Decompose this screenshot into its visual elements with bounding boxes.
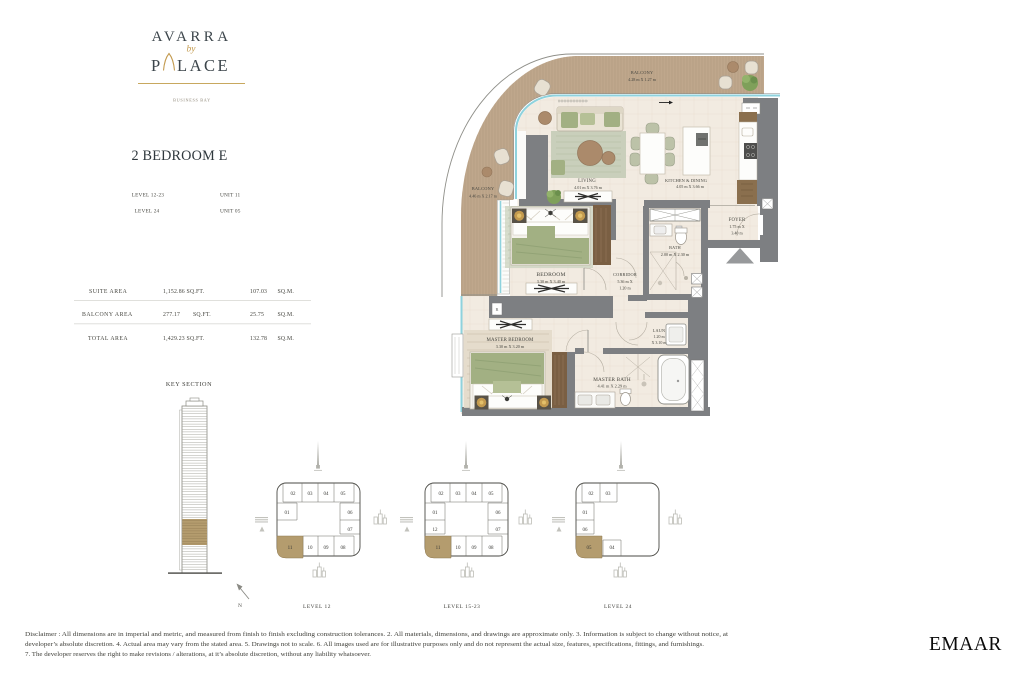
svg-text:KEY SECTION: KEY SECTION: [166, 381, 212, 388]
svg-text:10: 10: [456, 546, 462, 551]
svg-text:7. The developer reserves the: 7. The developer reserves the right to m…: [25, 652, 372, 658]
svg-text:SQ.FT.: SQ.FT.: [193, 312, 211, 318]
svg-text:MASTER BEDROOM: MASTER BEDROOM: [487, 338, 534, 343]
svg-text:1,152.86 SQ.FT.: 1,152.86 SQ.FT.: [163, 289, 205, 295]
svg-text:04: 04: [610, 546, 616, 551]
svg-text:5.36 m X: 5.36 m X: [617, 279, 632, 284]
svg-text:BATH: BATH: [669, 245, 681, 250]
svg-text:01: 01: [433, 511, 439, 516]
svg-text:TOTAL AREA: TOTAL AREA: [88, 336, 128, 342]
svg-text:P: P: [151, 56, 163, 75]
svg-text:07: 07: [348, 528, 354, 533]
svg-text:SUITE AREA: SUITE AREA: [89, 289, 128, 295]
svg-text:1,429.23 SQ.FT.: 1,429.23 SQ.FT.: [163, 336, 205, 342]
svg-text:BALCONY: BALCONY: [631, 70, 654, 75]
svg-text:SQ.M.: SQ.M.: [278, 336, 295, 342]
svg-text:EMAAR: EMAAR: [929, 634, 1002, 655]
svg-text:BALCONY: BALCONY: [472, 186, 495, 191]
svg-text:by: by: [187, 45, 197, 55]
svg-text:KITCHEN & DINING: KITCHEN & DINING: [665, 178, 708, 183]
svg-text:01: 01: [285, 511, 291, 516]
svg-text:03: 03: [308, 492, 314, 497]
svg-text:06: 06: [348, 511, 354, 516]
svg-text:LIVING: LIVING: [578, 179, 596, 184]
svg-text:3.40 m: 3.40 m: [731, 231, 743, 236]
svg-text:3.30 m X 3.40 m: 3.30 m X 3.40 m: [537, 279, 566, 284]
svg-text:Disclaimer : All dimensions ar: Disclaimer : All dimensions are in imper…: [25, 631, 728, 638]
svg-text:LAUN: LAUN: [653, 328, 665, 333]
svg-text:SQ.M.: SQ.M.: [278, 289, 295, 295]
svg-text:1.20 m: 1.20 m: [653, 334, 665, 339]
svg-text:02: 02: [589, 492, 595, 497]
svg-text:1.20 m: 1.20 m: [619, 286, 631, 291]
svg-text:4.41 m X 2.29 m: 4.41 m X 2.29 m: [597, 384, 627, 389]
svg-text:05: 05: [341, 492, 347, 497]
svg-text:11: 11: [436, 546, 441, 551]
svg-text:2.00 m X 2.30 m: 2.00 m X 2.30 m: [661, 252, 690, 257]
svg-text:LEVEL 24: LEVEL 24: [135, 208, 160, 214]
svg-text:09: 09: [324, 546, 330, 551]
svg-text:4.01 m X 3.76 m: 4.01 m X 3.76 m: [574, 185, 603, 190]
svg-text:LEVEL 15-23: LEVEL 15-23: [444, 604, 481, 610]
svg-text:LEVEL 12: LEVEL 12: [303, 604, 331, 610]
svg-text:developer’s absolute discretio: developer’s absolute discretion. 4. Actu…: [25, 641, 705, 648]
svg-text:01: 01: [583, 511, 589, 516]
svg-text:06: 06: [496, 511, 502, 516]
svg-text:FOYER: FOYER: [729, 218, 746, 223]
svg-text:4.28 m X 1.27 m: 4.28 m X 1.27 m: [628, 77, 657, 82]
svg-text:05: 05: [489, 492, 495, 497]
svg-text:08: 08: [489, 546, 495, 551]
svg-text:MASTER BATH: MASTER BATH: [593, 377, 631, 383]
svg-text:12: 12: [433, 528, 439, 533]
svg-text:107.03: 107.03: [250, 289, 267, 295]
svg-text:07: 07: [496, 528, 502, 533]
svg-text:R: R: [495, 307, 498, 312]
svg-text:4.05 m X 3.66 m: 4.05 m X 3.66 m: [676, 184, 705, 189]
svg-text:03: 03: [606, 492, 612, 497]
svg-text:11: 11: [288, 546, 293, 551]
svg-text:03: 03: [456, 492, 462, 497]
svg-text:09: 09: [472, 546, 478, 551]
svg-text:04: 04: [324, 492, 330, 497]
svg-text:04: 04: [472, 492, 478, 497]
svg-text:132.78: 132.78: [250, 336, 267, 342]
svg-text:10: 10: [308, 546, 314, 551]
svg-text:BEDROOM: BEDROOM: [536, 272, 565, 278]
svg-text:3.30 m X 3.20 m: 3.30 m X 3.20 m: [496, 344, 525, 349]
svg-text:05: 05: [587, 546, 593, 551]
svg-text:CORRIDOR: CORRIDOR: [613, 272, 637, 277]
svg-text:AVARRA: AVARRA: [152, 29, 232, 45]
svg-text:LEVEL 12-23: LEVEL 12-23: [132, 193, 165, 199]
svg-text:2 BEDROOM E: 2 BEDROOM E: [132, 148, 228, 164]
svg-text:06: 06: [583, 528, 589, 533]
svg-text:BALCONY AREA: BALCONY AREA: [82, 312, 133, 318]
svg-text:SQ.M.: SQ.M.: [278, 312, 295, 318]
svg-text:LACE: LACE: [177, 56, 230, 75]
svg-text:02: 02: [439, 492, 445, 497]
svg-text:BUSINESS BAY: BUSINESS BAY: [173, 97, 211, 102]
svg-text:UNIT 05: UNIT 05: [220, 208, 241, 214]
svg-text:02: 02: [291, 492, 297, 497]
svg-text:25.75: 25.75: [250, 312, 264, 318]
svg-text:N: N: [238, 603, 242, 609]
svg-text:LEVEL 24: LEVEL 24: [604, 604, 632, 610]
svg-text:1.75 m X: 1.75 m X: [729, 224, 744, 229]
svg-text:277.17: 277.17: [163, 312, 180, 318]
svg-text:4.46 m X 2.17 m: 4.46 m X 2.17 m: [469, 194, 498, 199]
svg-text:X 3.10 m: X 3.10 m: [652, 340, 668, 345]
svg-text:UNIT 11: UNIT 11: [220, 193, 241, 199]
svg-text:08: 08: [341, 546, 347, 551]
